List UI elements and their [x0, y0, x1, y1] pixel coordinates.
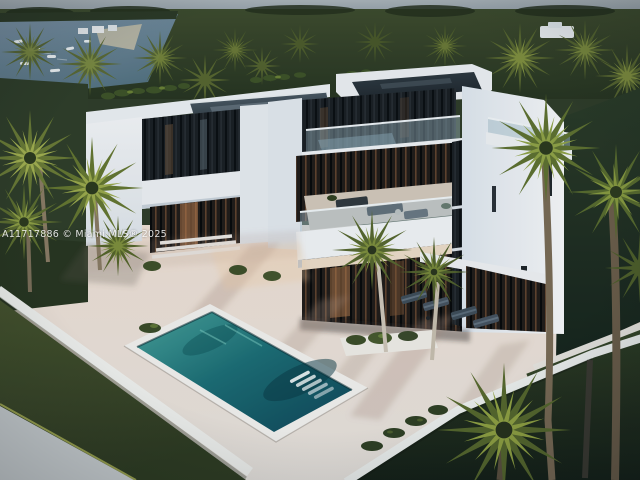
aerial-photo-illustration [0, 0, 640, 480]
vignette [0, 0, 640, 480]
mls-listing-photo: A11717886 © Miami MLS® 2025 [0, 0, 640, 480]
